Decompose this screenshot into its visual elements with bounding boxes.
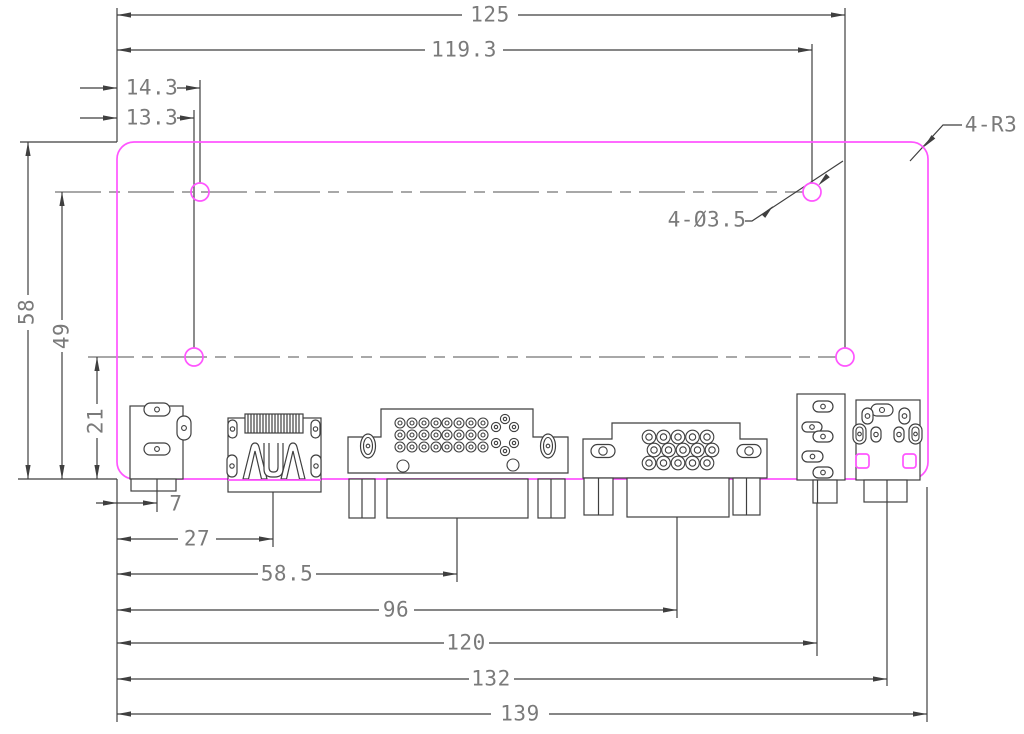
- dim-58: 58: [17, 299, 38, 325]
- dim-139: 139: [500, 704, 539, 725]
- dim-13-3: 13.3: [126, 108, 179, 129]
- dimension-drawing: 125 119.3 14.3 13.3 58 49 21 7 27 58.5 9…: [0, 0, 1024, 734]
- mounting-hole: [836, 348, 854, 366]
- dim-96: 96: [383, 600, 409, 621]
- dim-125: 125: [470, 5, 509, 26]
- dim-119-3: 119.3: [431, 40, 497, 61]
- dim-132: 132: [471, 669, 510, 690]
- dim-7: 7: [169, 494, 182, 515]
- hole-diameter-note: 4-Ø3.5: [668, 210, 747, 231]
- mounting-holes: [185, 183, 854, 366]
- dim-120: 120: [446, 633, 485, 654]
- dim-21: 21: [86, 408, 107, 434]
- av-jack-connector: [853, 400, 922, 502]
- mounting-hole: [803, 183, 821, 201]
- audio-jack-connector: [797, 394, 845, 503]
- dim-49: 49: [52, 323, 73, 349]
- corner-radius-note: 4-R3: [965, 115, 1018, 136]
- dvi-connector: [348, 409, 568, 518]
- dim-27: 27: [184, 529, 210, 550]
- dim-58-5: 58.5: [261, 564, 314, 585]
- dc-power-jack-connector: [130, 403, 191, 491]
- dim-14-3: 14.3: [126, 78, 179, 99]
- vga-connector: [583, 423, 767, 517]
